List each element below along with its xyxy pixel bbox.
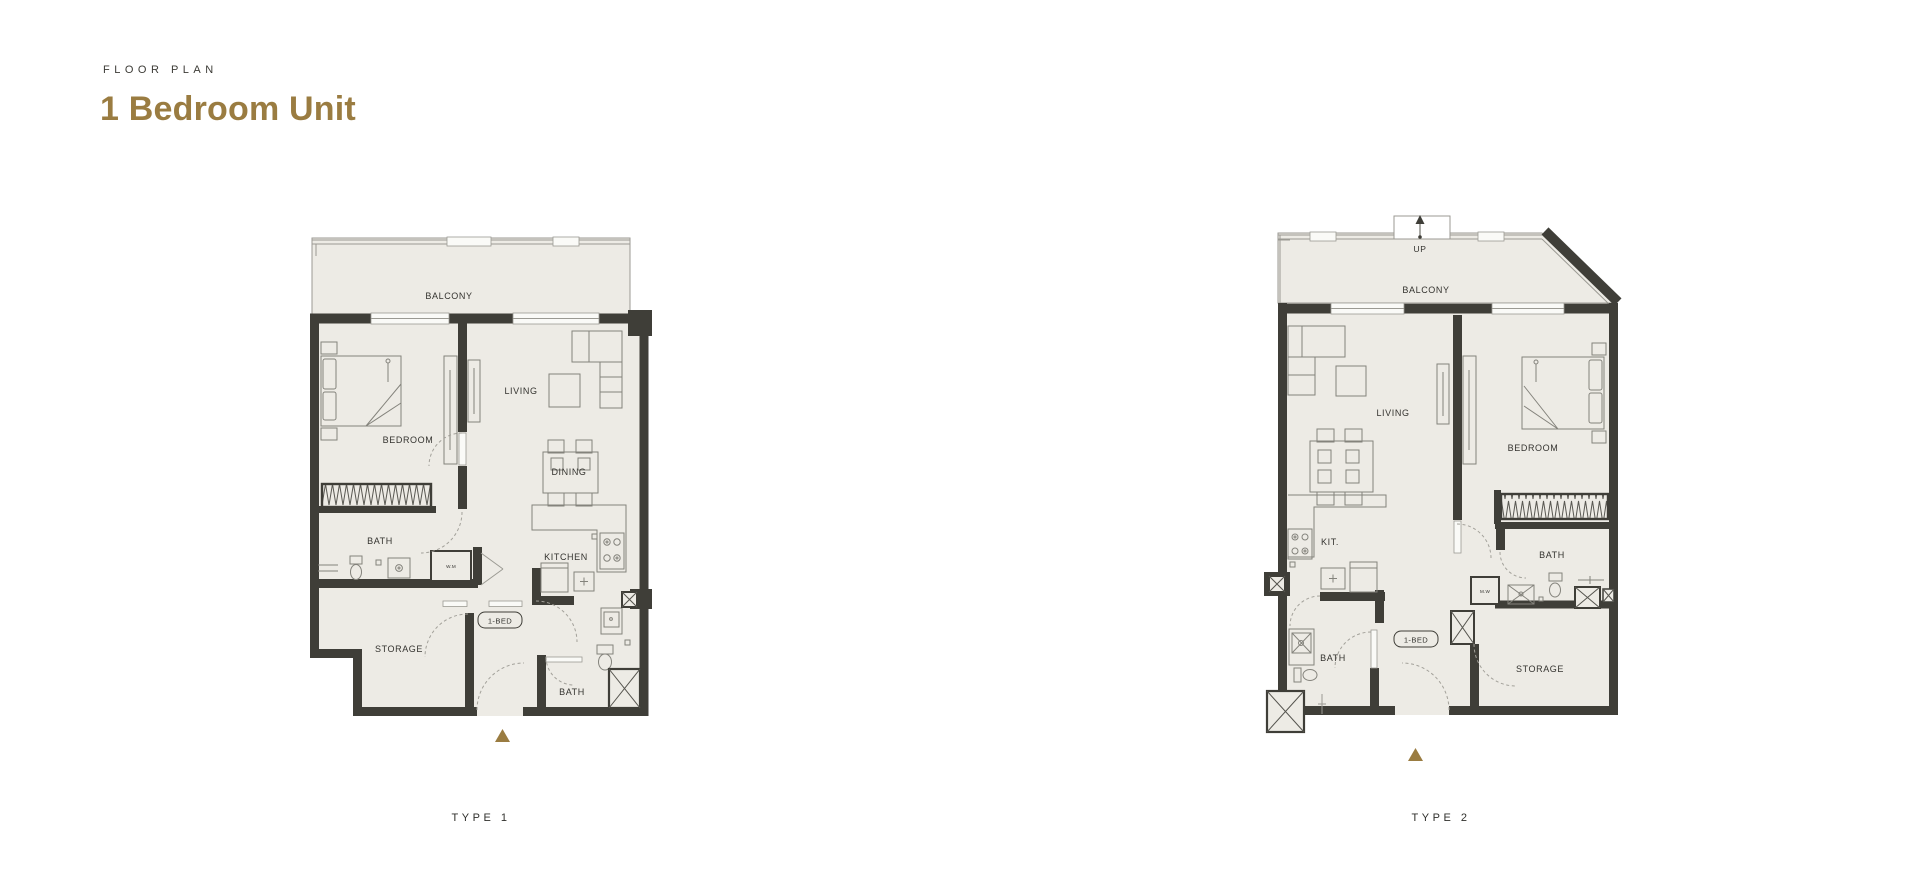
wardrobe-hatch bbox=[322, 484, 431, 507]
floor-plan-type1: W.M BALCO bbox=[300, 228, 660, 773]
shaft-box-hall bbox=[1451, 611, 1474, 644]
room-label-storage: STORAGE bbox=[375, 644, 423, 654]
wm-label: W.M bbox=[446, 564, 456, 569]
section-eyebrow: FLOOR PLAN bbox=[103, 64, 218, 76]
room-label-storage: STORAGE bbox=[1516, 664, 1564, 674]
room-label-balcony: BALCONY bbox=[1402, 285, 1449, 295]
room-label-dining: DINING bbox=[551, 467, 586, 477]
shaft-box-large bbox=[609, 669, 640, 708]
stair-label: UP bbox=[1413, 244, 1426, 254]
room-label-bath2: BATH bbox=[1539, 550, 1565, 560]
mw-label: M.W bbox=[1480, 589, 1491, 594]
wardrobe-hatch bbox=[1501, 494, 1608, 519]
room-label-living: LIVING bbox=[1376, 408, 1409, 418]
entrance-marker bbox=[495, 729, 510, 742]
floor-plan-page: FLOOR PLAN 1 Bedroom Unit bbox=[0, 0, 1920, 871]
room-label-kitchen: KITCHEN bbox=[544, 552, 588, 562]
balcony-floor bbox=[312, 238, 630, 315]
room-label-living: LIVING bbox=[504, 386, 537, 396]
shaft-box-left bbox=[1264, 572, 1290, 596]
room-label-kitchen: KIT. bbox=[1321, 537, 1339, 547]
page-title: 1 Bedroom Unit bbox=[100, 90, 356, 129]
room-label-bath1: BATH bbox=[367, 536, 393, 546]
room-label-bath1: BATH bbox=[1320, 653, 1346, 663]
svg-text:1-BED: 1-BED bbox=[488, 617, 512, 626]
shaft-box bbox=[622, 589, 652, 609]
room-label-bath2: BATH bbox=[559, 687, 585, 697]
room-label-bedroom: BEDROOM bbox=[383, 435, 434, 445]
room-label-balcony: BALCONY bbox=[425, 291, 472, 301]
floor-plan-type2: UP bbox=[1248, 203, 1630, 775]
svg-text:1-BED: 1-BED bbox=[1404, 636, 1428, 645]
washing-machine-box: W.M bbox=[431, 551, 471, 581]
shaft-box-large bbox=[1267, 691, 1304, 732]
entrance-marker bbox=[1408, 748, 1423, 761]
plan-caption-type2: TYPE 2 bbox=[1341, 812, 1541, 824]
plan-caption-type1: TYPE 1 bbox=[381, 812, 581, 824]
room-label-bedroom: BEDROOM bbox=[1508, 443, 1559, 453]
washing-machine-box: M.W bbox=[1471, 577, 1499, 604]
